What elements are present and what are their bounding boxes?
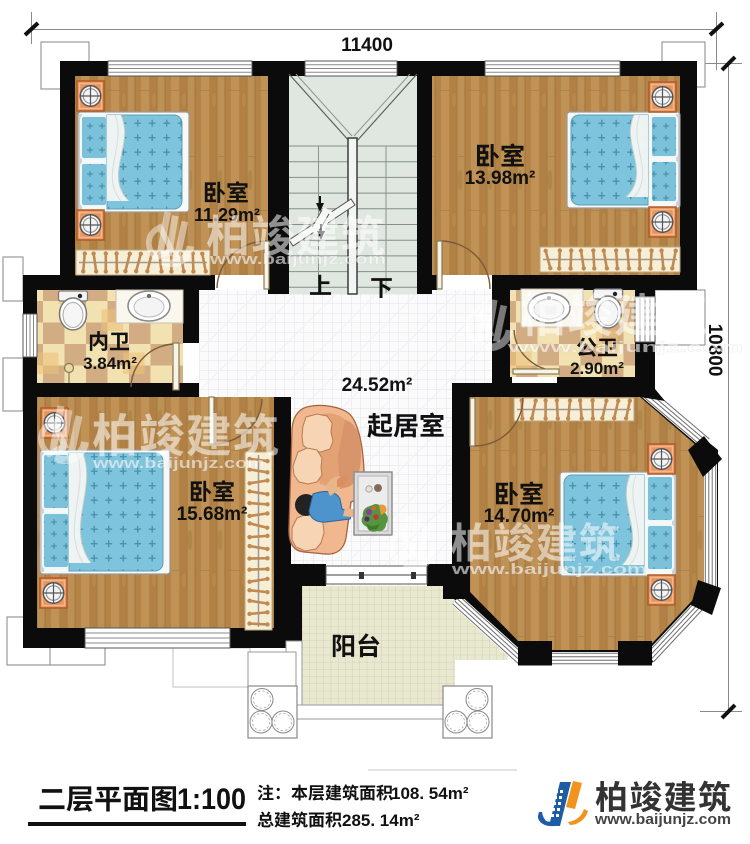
svg-text:1:100: 1:100 — [177, 783, 246, 816]
svg-text:15.68m²: 15.68m² — [177, 504, 248, 525]
svg-text:www.baijunjz.com: www.baijunjz.com — [506, 339, 743, 356]
svg-text:13.98m²: 13.98m² — [465, 168, 536, 189]
svg-text:11.29m²: 11.29m² — [194, 205, 260, 225]
svg-text:www.baijunjz.com: www.baijunjz.com — [450, 561, 647, 578]
svg-text:www.baijunjz.com: www.baijunjz.com — [209, 251, 386, 268]
svg-text:108. 54m²: 108. 54m² — [391, 784, 469, 803]
svg-text:285. 14m²: 285. 14m² — [342, 811, 420, 830]
svg-text:2.90m²: 2.90m² — [570, 359, 624, 378]
svg-text:11400: 11400 — [341, 35, 393, 56]
svg-text:24.52m²: 24.52m² — [342, 375, 413, 396]
svg-text:www.baijunjz.com: www.baijunjz.com — [594, 812, 731, 828]
svg-text:www.baijunjz.com: www.baijunjz.com — [92, 455, 265, 472]
svg-text:3.84m²: 3.84m² — [83, 354, 137, 373]
